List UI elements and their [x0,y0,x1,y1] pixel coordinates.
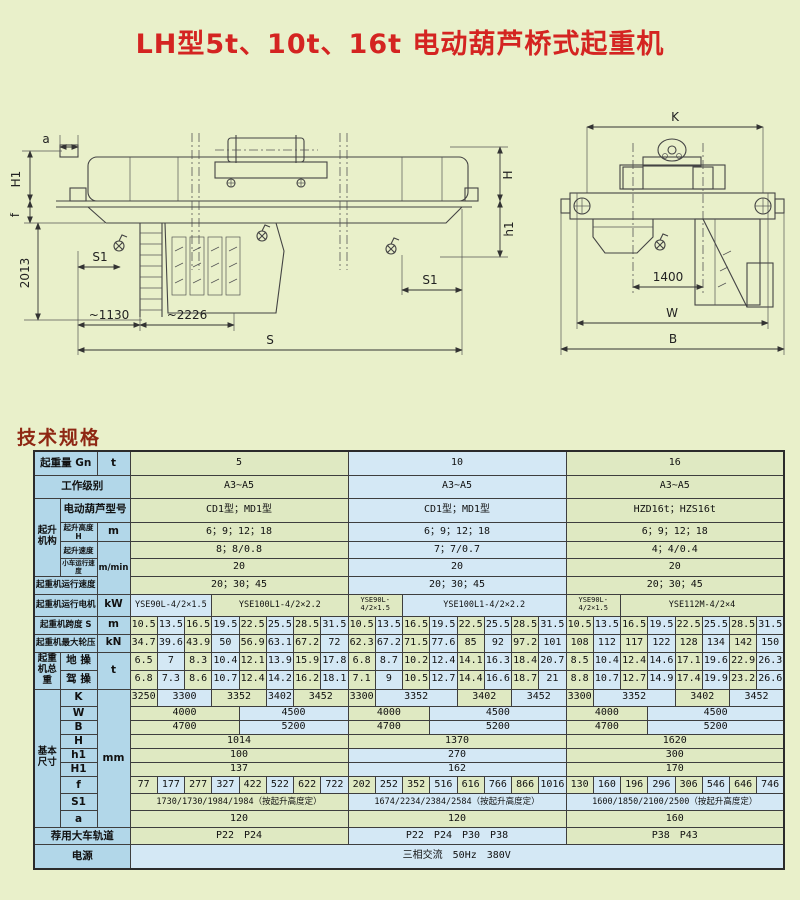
spec-value-cell: 4500 [430,706,566,720]
spec-value-cell: 25.5 [702,616,729,634]
spec-value-cell: 3452 [512,689,567,706]
spec-value-cell: 14.4 [457,670,484,689]
spec-value-cell: HZD16t；HZS16t [566,498,784,522]
spec-value-cell: 296 [648,777,675,794]
spec-value-cell: 16.3 [484,652,511,670]
spec-value-cell: 1016 [539,777,566,794]
spec-value-cell: 128 [675,634,702,652]
spec-value-cell: 21 [539,670,566,689]
spec-value-cell: 3300 [157,689,212,706]
spec-value-cell: 28.5 [730,616,757,634]
spec-value-cell: 5 [130,451,348,475]
spec-value-cell: 28.5 [512,616,539,634]
dim-label-s1-right: S1 [422,273,437,287]
front-view-drawing: a H1 f 2013 S1 ~1130 ~2226 S H h1 S1 [10,105,555,405]
spec-label-cell: 起重机运行速度 [34,576,97,594]
spec-value-cell: 196 [621,777,648,794]
spec-label-cell: 工作级别 [34,475,130,498]
spec-label-cell: t [97,652,130,689]
spec-value-cell: 3250 [130,689,157,706]
spec-label-cell: B [60,720,97,734]
spec-value-cell: 50 [212,634,239,652]
spec-value-cell: 20 [130,559,348,576]
spec-value-cell: 122 [648,634,675,652]
spec-value-cell: 6；9；12；18 [130,522,348,542]
spec-value-cell: 14.1 [457,652,484,670]
spec-label-cell: 起升机构 [34,498,60,576]
spec-label-cell: h1 [60,748,97,762]
spec-value-cell: 10.7 [593,670,620,689]
spec-value-cell: 546 [702,777,729,794]
dim-label-f: f [10,212,22,217]
spec-value-cell: 10.4 [212,652,239,670]
spec-value-cell: 17.1 [675,652,702,670]
spec-value-cell: 17.4 [675,670,702,689]
dim-label-h1: h1 [502,221,516,236]
spec-value-cell: 112 [593,634,620,652]
spec-label-cell: kN [97,634,130,652]
spec-value-cell: 160 [593,777,620,794]
spec-value-cell: 97.2 [512,634,539,652]
spec-value-cell: 150 [757,634,784,652]
spec-value-cell: 4；4/0.4 [566,542,784,559]
spec-label-cell: H1 [60,763,97,777]
spec-value-cell: 4500 [648,706,784,720]
spec-label-cell: S1 [60,794,97,811]
spec-value-cell: 22.5 [675,616,702,634]
dim-label-S: S [266,333,274,347]
spec-value-cell: A3~A5 [348,475,566,498]
spec-value-cell: 6.8 [348,652,375,670]
spec-value-cell: 10.2 [403,652,430,670]
spec-value-cell: 92 [484,634,511,652]
spec-value-cell: 3402 [675,689,730,706]
spec-value-cell: 300 [566,748,784,762]
spec-value-cell: 12.4 [430,652,457,670]
spec-value-cell: 6.8 [130,670,157,689]
spec-value-cell: 7 [157,652,184,670]
spec-value-cell: 8.6 [185,670,212,689]
dim-label-2226: ~2226 [167,308,208,322]
spec-value-cell: 10.5 [403,670,430,689]
spec-value-cell: 516 [430,777,457,794]
spec-value-cell: 20.7 [539,652,566,670]
spec-value-cell: 18.1 [321,670,348,689]
dim-label-s1-left: S1 [92,250,107,264]
spec-value-cell: YSE100L1-4/2×2.2 [403,594,567,616]
spec-value-cell: 5200 [430,720,566,734]
dim-label-1400: 1400 [653,270,684,284]
spec-value-cell: 4700 [566,720,648,734]
spec-value-cell: 22.5 [457,616,484,634]
spec-value-cell: 646 [730,777,757,794]
spec-value-cell: 20 [348,559,566,576]
spec-value-cell: CD1型；MD1型 [348,498,566,522]
dim-label-K: K [671,110,680,124]
spec-value-cell: 4700 [130,720,239,734]
spec-table: 起重量 Gnt51016工作级别A3~A5A3~A5A3~A5起升机构电动葫芦型… [33,450,785,870]
spec-label-cell: 地 操 [60,652,97,670]
spec-value-cell: 17.8 [321,652,348,670]
spec-value-cell: 3402 [457,689,512,706]
spec-value-cell: 766 [484,777,511,794]
spec-value-cell: 170 [566,763,784,777]
spec-value-cell: 137 [130,763,348,777]
spec-value-cell: 134 [702,634,729,652]
spec-value-cell: 16.5 [621,616,648,634]
spec-value-cell: 1014 [130,734,348,748]
spec-value-cell: 16.5 [403,616,430,634]
spec-value-cell: YSE90L-4/2×1.5 [348,594,403,616]
spec-value-cell: 4000 [130,706,239,720]
spec-value-cell: 1674/2234/2384/2584（按起升高度定） [348,794,566,811]
spec-value-cell: 10.7 [212,670,239,689]
spec-value-cell: 160 [566,811,784,828]
spec-value-cell: 4000 [348,706,430,720]
spec-value-cell: 866 [512,777,539,794]
spec-value-cell: 13.5 [593,616,620,634]
spec-value-cell: 20；30；45 [348,576,566,594]
spec-value-cell: 202 [348,777,375,794]
spec-value-cell: 8.7 [375,652,402,670]
spec-label-cell: t [97,451,130,475]
spec-value-cell: 26.6 [757,670,784,689]
spec-value-cell: YSE112M-4/2×4 [621,594,785,616]
spec-value-cell: 422 [239,777,266,794]
spec-value-cell: 4000 [566,706,648,720]
spec-value-cell: 18.7 [512,670,539,689]
spec-value-cell: 10.5 [130,616,157,634]
spec-value-cell: 162 [348,763,566,777]
spec-value-cell: 12.7 [430,670,457,689]
dim-label-H1: H1 [10,171,23,188]
spec-value-cell: 71.5 [403,634,430,652]
datasheet-page: { "page": { "title": "LH型5t、10t、16t 电动葫芦… [0,0,800,900]
spec-value-cell: 12.4 [239,670,266,689]
spec-value-cell: 5200 [239,720,348,734]
spec-value-cell: YSE100L1-4/2×2.2 [212,594,348,616]
spec-value-cell: 85 [457,634,484,652]
spec-value-cell: 3300 [348,689,375,706]
spec-value-cell: 352 [403,777,430,794]
spec-value-cell: 16.6 [484,670,511,689]
spec-value-cell: P38 P43 [566,828,784,845]
spec-value-cell: A3~A5 [566,475,784,498]
dim-label-2013: 2013 [18,258,32,289]
spec-value-cell: 1600/1850/2100/2500（按起升高度定） [566,794,784,811]
spec-value-cell: 252 [375,777,402,794]
spec-value-cell: 1370 [348,734,566,748]
spec-value-cell: 277 [185,777,212,794]
spec-value-cell: 3452 [730,689,785,706]
spec-value-cell: 12.1 [239,652,266,670]
spec-value-cell: 13.5 [157,616,184,634]
spec-value-cell: 142 [730,634,757,652]
spec-value-cell: 522 [266,777,293,794]
spec-value-cell: 31.5 [757,616,784,634]
spec-value-cell: 6；9；12；18 [348,522,566,542]
spec-value-cell: 12.4 [621,652,648,670]
spec-value-cell: 22.9 [730,652,757,670]
spec-value-cell: 20 [566,559,784,576]
spec-value-cell: 616 [457,777,484,794]
spec-value-cell: P22 P24 P30 P38 [348,828,566,845]
spec-value-cell: 101 [539,634,566,652]
spec-value-cell: 130 [566,777,593,794]
spec-value-cell: 43.9 [185,634,212,652]
spec-label-cell: 起重量 Gn [34,451,97,475]
spec-value-cell: 16.2 [294,670,321,689]
spec-value-cell: 746 [757,777,784,794]
spec-label-cell: 起重机运行电机 [34,594,97,616]
spec-value-cell: 16 [566,451,784,475]
spec-value-cell: 4700 [348,720,430,734]
spec-label-cell: W [60,706,97,720]
spec-value-cell: 13.9 [266,652,293,670]
spec-value-cell: 12.7 [621,670,648,689]
end-view-drawing: K 1400 W B [555,105,795,405]
spec-value-cell: YSE90L-4/2×1.5 [130,594,212,616]
spec-value-cell: 3402 [266,689,293,706]
spec-value-cell: 8.8 [566,670,593,689]
spec-value-cell: 19.5 [430,616,457,634]
spec-label-cell: m [97,616,130,634]
spec-value-cell: 722 [321,777,348,794]
spec-value-cell: 8.3 [185,652,212,670]
spec-value-cell: 62.3 [348,634,375,652]
spec-value-cell: 31.5 [321,616,348,634]
dim-label-H: H [501,170,515,179]
spec-label-cell: 电源 [34,845,130,869]
spec-value-cell: 117 [621,634,648,652]
spec-value-cell: 19.5 [212,616,239,634]
spec-value-cell: 9 [375,670,402,689]
spec-value-cell: 16.5 [185,616,212,634]
spec-value-cell: 三相交流 50Hz 380V [130,845,784,869]
spec-label-cell: 基本尺寸 [34,689,60,828]
spec-label-cell: H [60,734,97,748]
spec-value-cell: 67.2 [294,634,321,652]
spec-value-cell: 28.5 [294,616,321,634]
spec-value-cell: 120 [348,811,566,828]
spec-value-cell: 4500 [239,706,348,720]
spec-value-cell: 25.5 [484,616,511,634]
spec-value-cell: 177 [157,777,184,794]
spec-label-cell: K [60,689,97,706]
spec-value-cell: 72 [321,634,348,652]
dim-label-B: B [669,332,677,346]
dim-label-W: W [666,306,678,320]
dim-label-1130: ~1130 [89,308,130,322]
spec-value-cell: 14.6 [648,652,675,670]
page-title: LH型5t、10t、16t 电动葫芦桥式起重机 [0,22,800,61]
spec-value-cell: 26.3 [757,652,784,670]
spec-label-cell: kW [97,594,130,616]
spec-value-cell: 622 [294,777,321,794]
spec-value-cell: YSE90L-4/2×1.5 [566,594,621,616]
spec-value-cell: 306 [675,777,702,794]
spec-value-cell: 3300 [566,689,593,706]
spec-value-cell: 20；30；45 [566,576,784,594]
spec-value-cell: 270 [348,748,566,762]
dim-label-a: a [42,132,49,146]
spec-value-cell: 108 [566,634,593,652]
spec-value-cell: 18.4 [512,652,539,670]
spec-label-cell: 小车运行速度 [60,559,97,576]
spec-label-cell: 起重机跨度 S [34,616,97,634]
spec-value-cell: 7.3 [157,670,184,689]
spec-label-cell: 起重机最大轮压 [34,634,97,652]
spec-value-cell: 23.2 [730,670,757,689]
section-heading: 技术规格 [17,423,101,450]
spec-value-cell: 3352 [593,689,675,706]
spec-value-cell: 34.7 [130,634,157,652]
spec-value-cell: 100 [130,748,348,762]
spec-value-cell: 25.5 [266,616,293,634]
spec-label-cell: 电动葫芦型号 [60,498,130,522]
spec-value-cell: 10.5 [348,616,375,634]
spec-value-cell: 19.6 [702,652,729,670]
spec-value-cell: 6.5 [130,652,157,670]
spec-value-cell: 19.5 [648,616,675,634]
spec-value-cell: 3352 [212,689,267,706]
spec-value-cell: 120 [130,811,348,828]
spec-value-cell: 22.5 [239,616,266,634]
spec-value-cell: 7；7/0.7 [348,542,566,559]
spec-label-cell: m/min [97,542,130,594]
spec-value-cell: 77.6 [430,634,457,652]
spec-value-cell: 67.2 [375,634,402,652]
spec-value-cell: 13.5 [375,616,402,634]
spec-value-cell: 8.5 [566,652,593,670]
spec-value-cell: CD1型；MD1型 [130,498,348,522]
spec-label-cell: m [97,522,130,542]
spec-label-cell: f [60,777,97,794]
spec-value-cell: 3352 [375,689,457,706]
spec-value-cell: 31.5 [539,616,566,634]
spec-label-cell: mm [97,689,130,828]
spec-label-cell: 驾 操 [60,670,97,689]
spec-label-cell: 起升速度 [60,542,97,559]
spec-value-cell: 20；30；45 [130,576,348,594]
spec-value-cell: 14.2 [266,670,293,689]
spec-value-cell: 10 [348,451,566,475]
spec-value-cell: 10.5 [566,616,593,634]
spec-value-cell: 19.9 [702,670,729,689]
spec-value-cell: 14.9 [648,670,675,689]
spec-value-cell: 15.9 [294,652,321,670]
spec-label-cell: 起升高度H [60,522,97,542]
spec-value-cell: 5200 [648,720,784,734]
spec-value-cell: 77 [130,777,157,794]
spec-label-cell: a [60,811,97,828]
spec-value-cell: A3~A5 [130,475,348,498]
spec-value-cell: 1620 [566,734,784,748]
spec-value-cell: 63.1 [266,634,293,652]
spec-value-cell: 8；8/0.8 [130,542,348,559]
spec-table-body: 起重量 Gnt51016工作级别A3~A5A3~A5A3~A5起升机构电动葫芦型… [34,451,784,869]
spec-value-cell: 6；9；12；18 [566,522,784,542]
spec-value-cell: 327 [212,777,239,794]
spec-value-cell: 3452 [294,689,349,706]
spec-label-cell: 起重机总重 [34,652,60,689]
spec-value-cell: 1730/1730/1984/1984（按起升高度定） [130,794,348,811]
spec-value-cell: P22 P24 [130,828,348,845]
spec-value-cell: 56.9 [239,634,266,652]
spec-value-cell: 39.6 [157,634,184,652]
spec-label-cell: 荐用大车轨道 [34,828,130,845]
spec-value-cell: 10.4 [593,652,620,670]
spec-value-cell: 7.1 [348,670,375,689]
